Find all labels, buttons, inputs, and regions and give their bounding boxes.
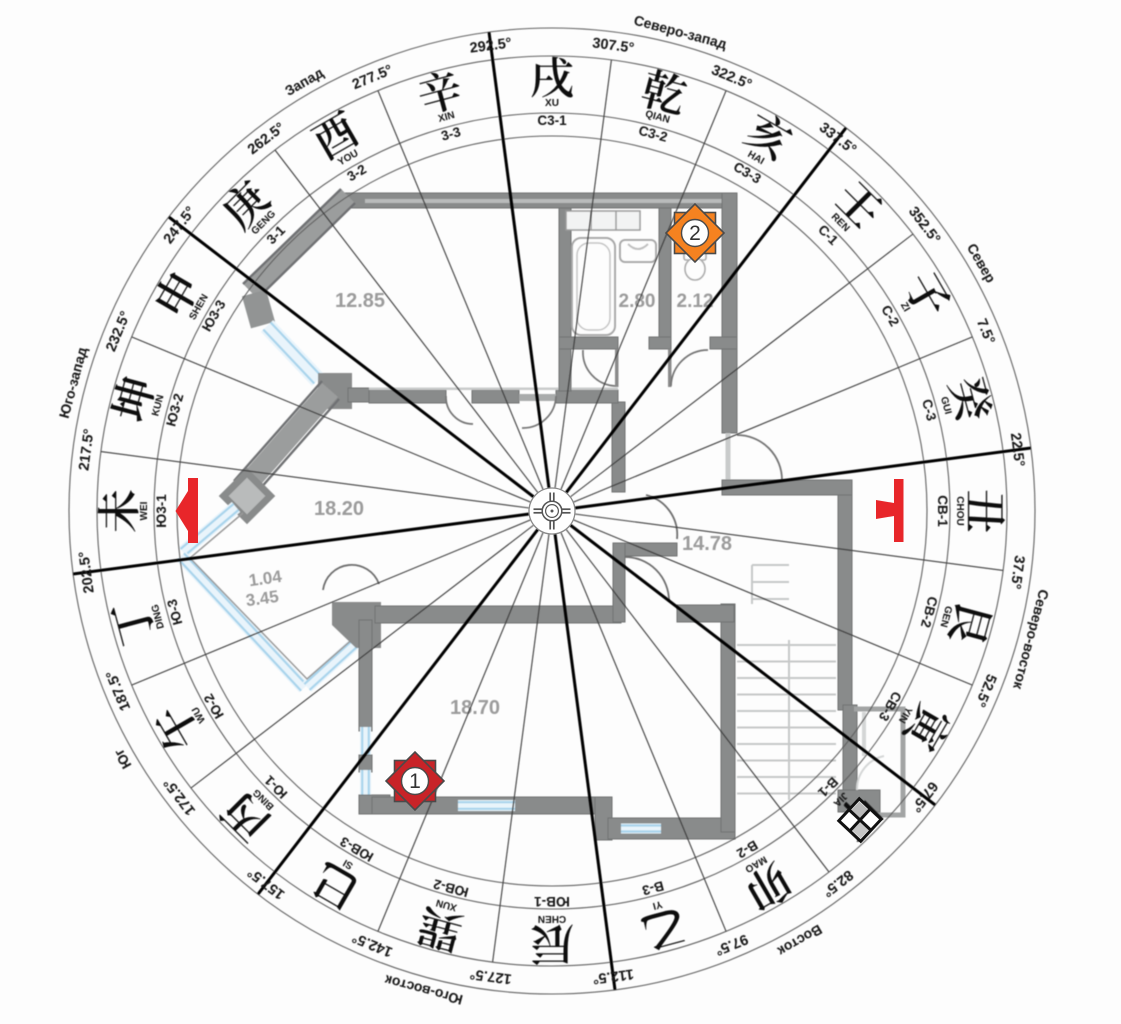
svg-text:1: 1 <box>409 770 421 793</box>
svg-text:ЮВ-1: ЮВ-1 <box>534 894 570 909</box>
svg-text:CHOU: CHOU <box>954 496 965 525</box>
svg-text:12.85: 12.85 <box>335 290 385 312</box>
svg-text:СВ-1: СВ-1 <box>935 495 950 527</box>
svg-text:Ю3-1: Ю3-1 <box>154 494 169 528</box>
svg-text:XU: XU <box>545 98 559 109</box>
svg-text:WEI: WEI <box>139 501 150 520</box>
svg-text:18.20: 18.20 <box>314 498 364 520</box>
svg-text:CHEN: CHEN <box>538 913 566 924</box>
svg-text:18.70: 18.70 <box>450 697 500 719</box>
svg-text:2: 2 <box>689 222 701 245</box>
svg-text:С3-1: С3-1 <box>537 113 567 128</box>
svg-text:14.78: 14.78 <box>682 533 732 555</box>
svg-text:2.80: 2.80 <box>619 291 656 312</box>
